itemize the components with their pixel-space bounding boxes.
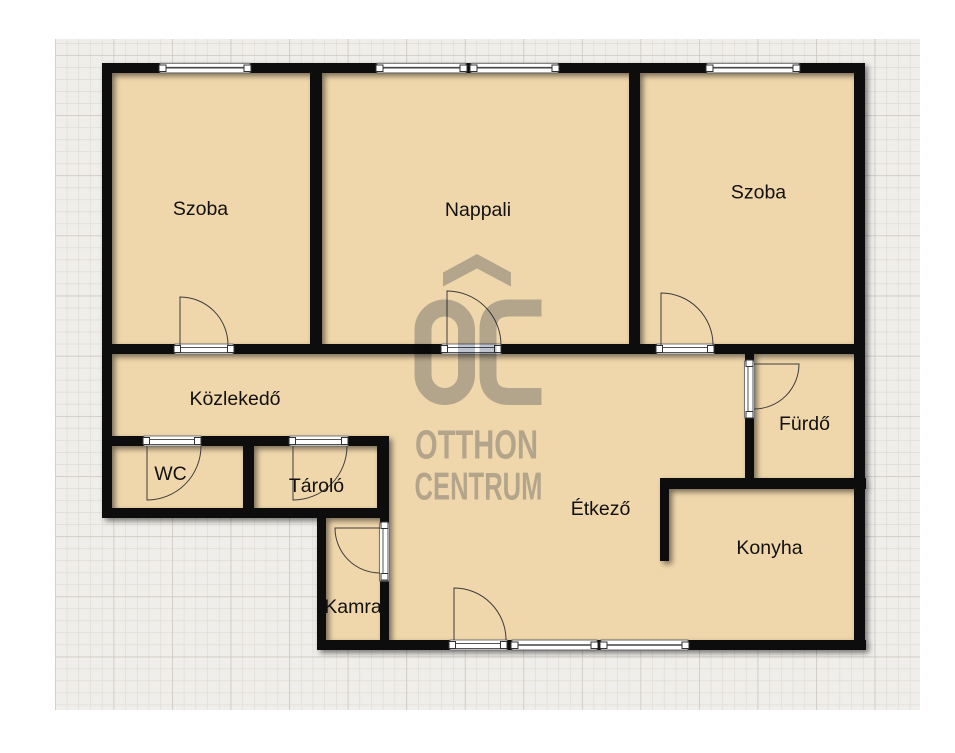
svg-text:Étkező: Étkező — [571, 497, 631, 520]
svg-text:CENTRUM: CENTRUM — [415, 466, 543, 509]
svg-text:Nappali: Nappali — [445, 199, 511, 221]
svg-text:Tároló: Tároló — [289, 475, 344, 497]
svg-text:Közlekedő: Közlekedő — [189, 388, 280, 410]
svg-text:Szoba: Szoba — [173, 198, 228, 220]
svg-text:Kamra: Kamra — [324, 596, 382, 618]
svg-text:Fürdő: Fürdő — [779, 413, 830, 435]
svg-text:OTTHON: OTTHON — [415, 422, 538, 468]
svg-text:Szoba: Szoba — [731, 182, 786, 204]
svg-text:WC: WC — [154, 463, 187, 485]
svg-text:Konyha: Konyha — [736, 537, 802, 559]
